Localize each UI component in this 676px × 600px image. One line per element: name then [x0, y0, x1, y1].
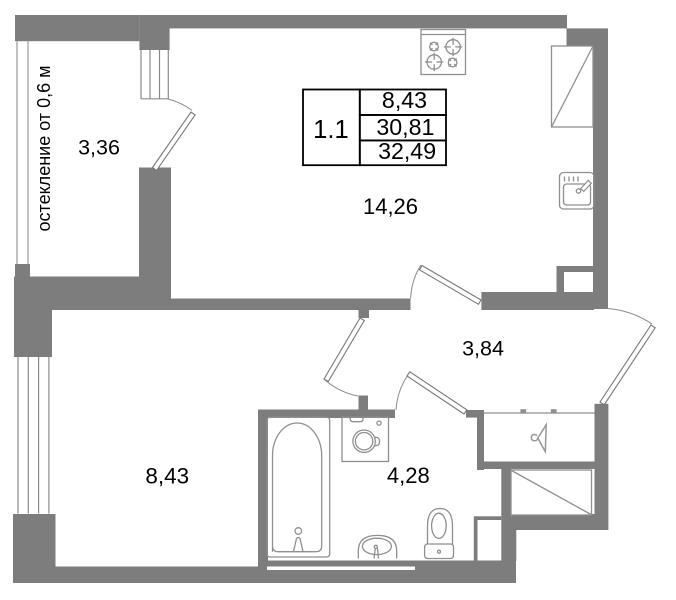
- svg-text:30,81: 30,81: [376, 114, 434, 140]
- svg-text:остекление от 0,6 м: остекление от 0,6 м: [34, 66, 54, 232]
- svg-text:32,49: 32,49: [378, 138, 436, 164]
- svg-text:8,43: 8,43: [382, 87, 427, 113]
- svg-text:3,36: 3,36: [78, 136, 120, 160]
- svg-text:3,84: 3,84: [462, 337, 504, 361]
- svg-text:1.1: 1.1: [313, 116, 348, 144]
- svg-text:8,43: 8,43: [145, 464, 189, 489]
- svg-text:14,26: 14,26: [363, 194, 418, 219]
- svg-text:4,28: 4,28: [387, 463, 430, 488]
